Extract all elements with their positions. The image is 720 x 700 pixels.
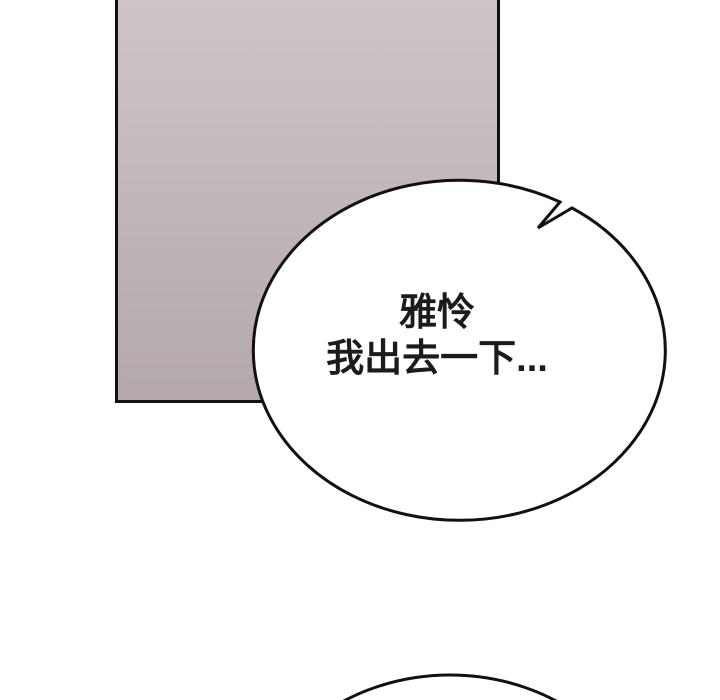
speech-line-2: 我出去一下... bbox=[187, 336, 687, 382]
speech-bubble-text: 雅怜 我出去一下... bbox=[187, 290, 687, 382]
speech-line-1: 雅怜 bbox=[187, 290, 687, 336]
comic-panel: 雅怜 我出去一下... bbox=[0, 0, 720, 700]
next-speech-bubble bbox=[245, 675, 655, 700]
